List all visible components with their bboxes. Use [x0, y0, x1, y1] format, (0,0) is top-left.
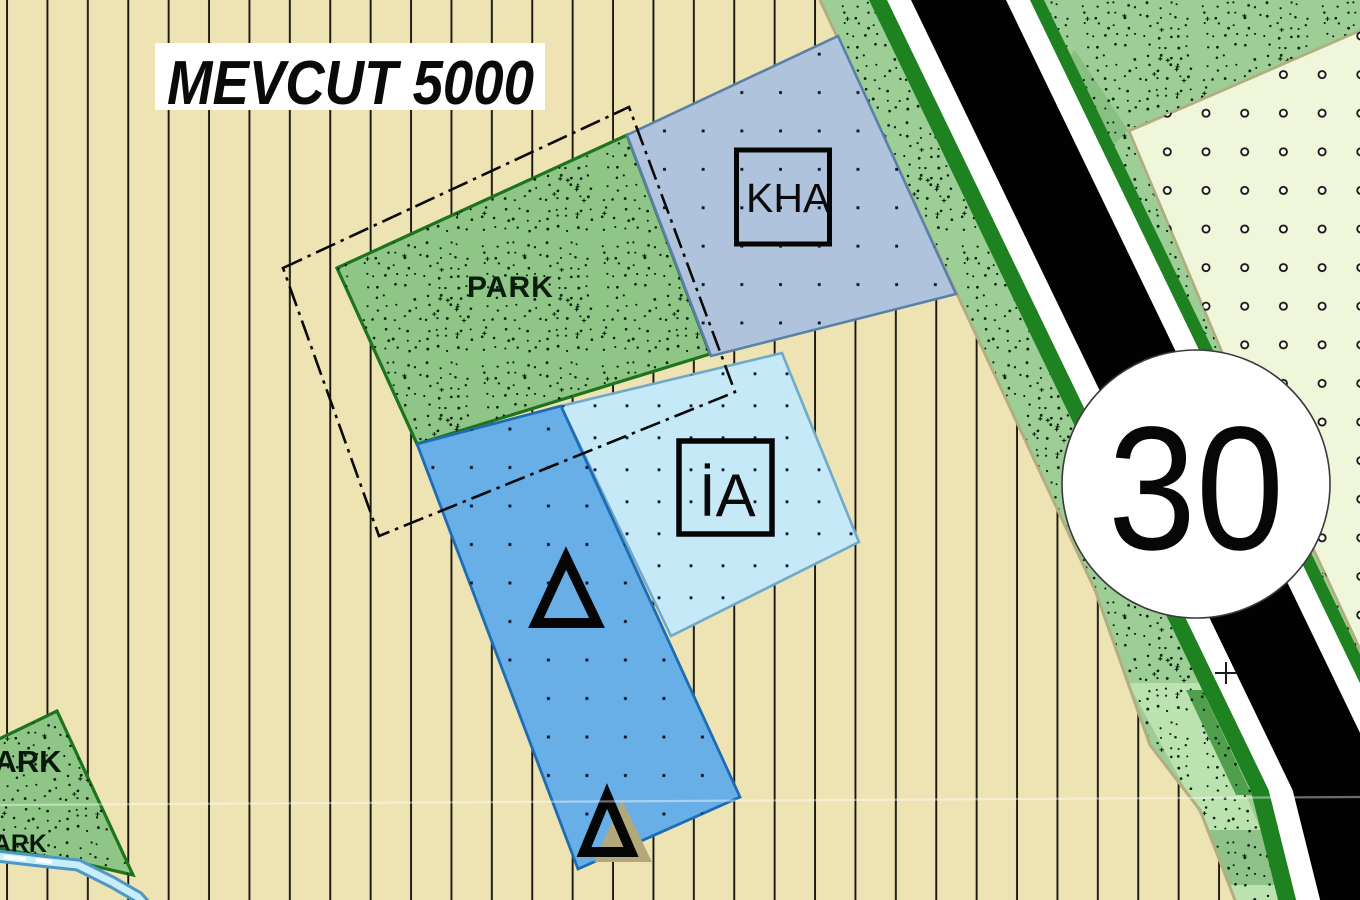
svg-text:PARK: PARK	[467, 271, 554, 304]
svg-text:30: 30	[1108, 391, 1284, 587]
svg-text:KHA: KHA	[746, 175, 831, 221]
svg-text:MEVCUT 5000: MEVCUT 5000	[167, 49, 534, 118]
svg-text:PARK: PARK	[0, 744, 62, 779]
svg-text:İA: İA	[699, 462, 756, 529]
